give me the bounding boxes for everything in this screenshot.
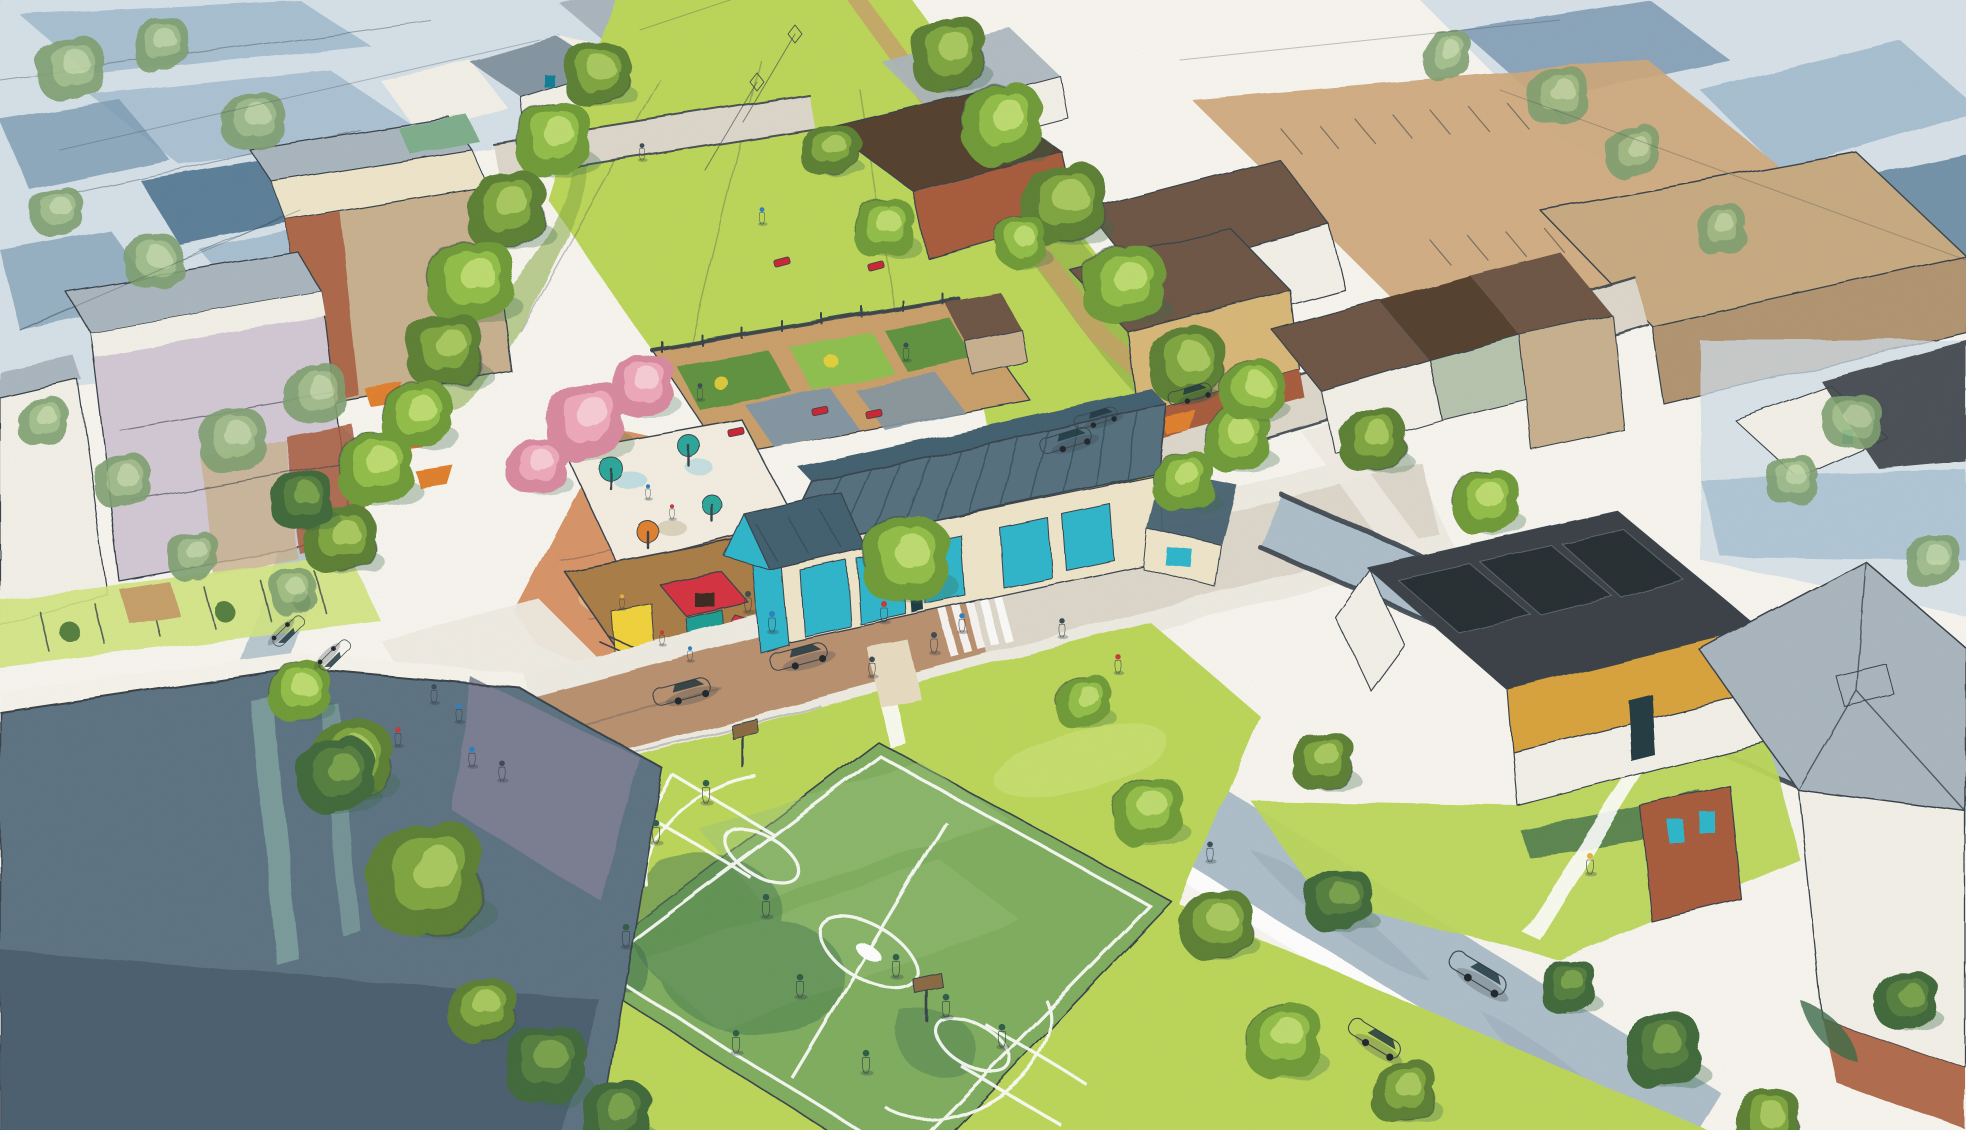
watercolor-rendering — [0, 0, 1966, 1130]
rendering-stage — [0, 0, 1966, 1130]
paper-grain — [0, 0, 1966, 1130]
